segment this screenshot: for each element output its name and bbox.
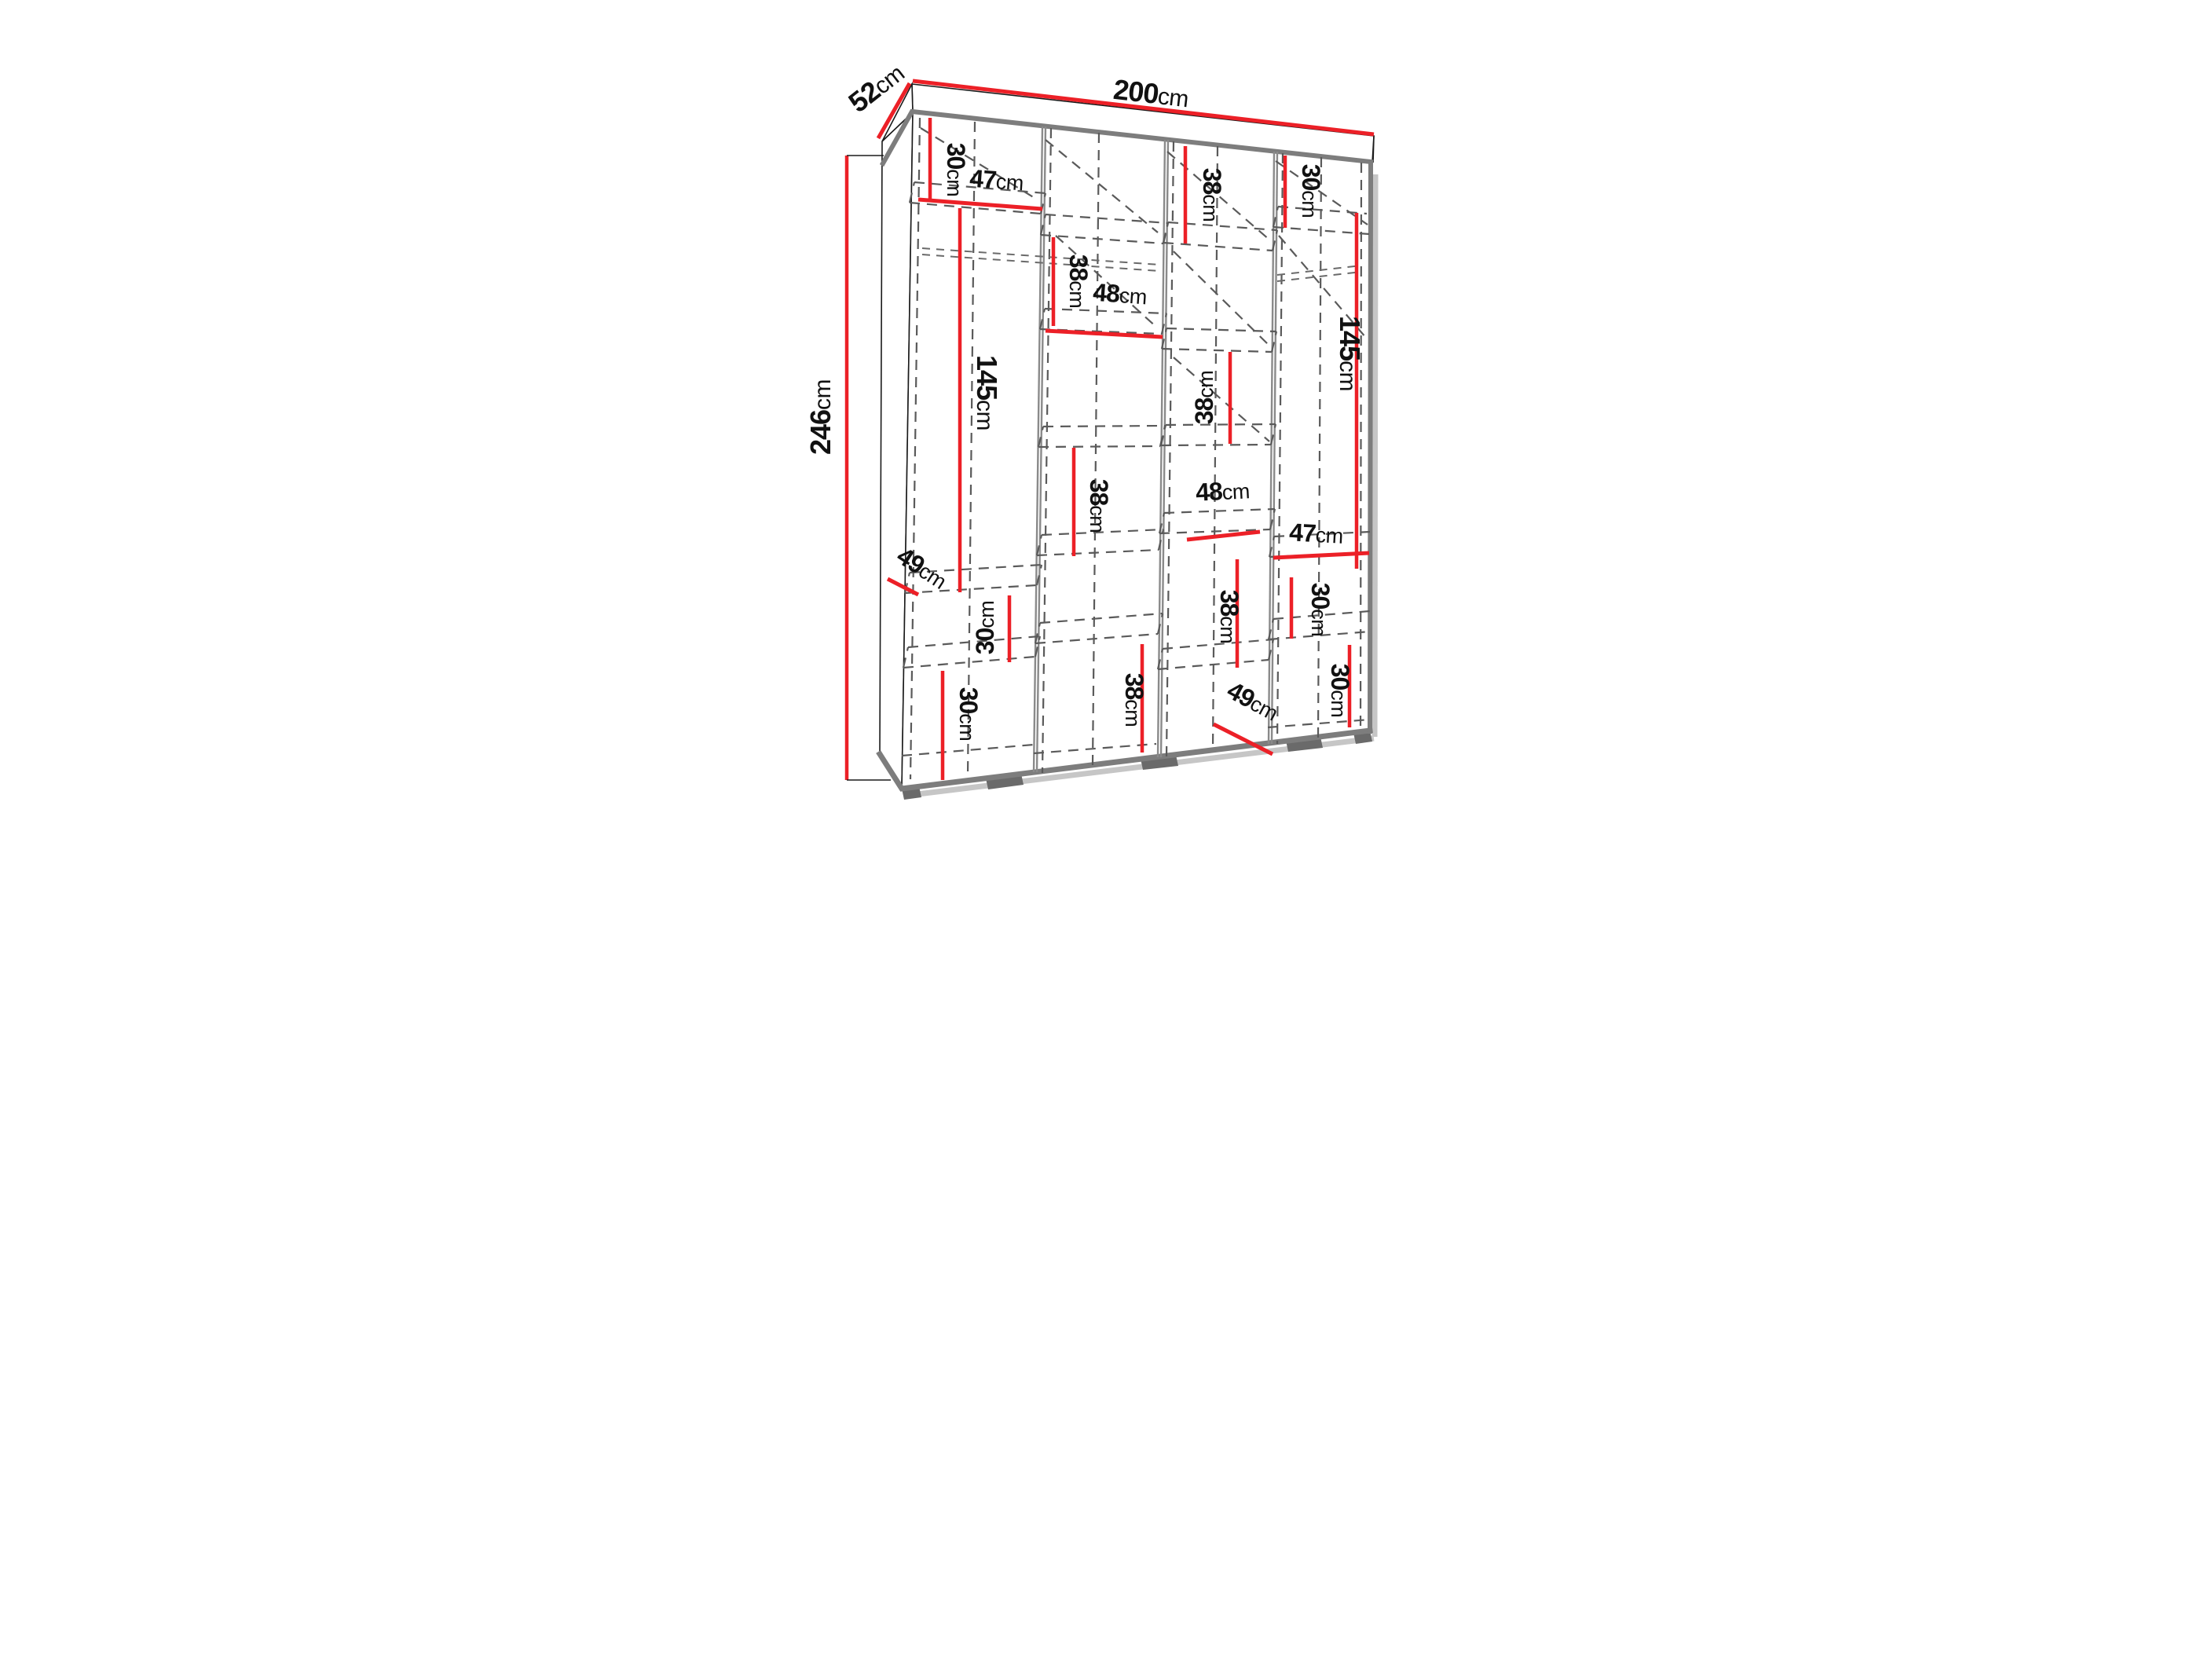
dimension-label-col4-bot-30: 30cm: [1326, 664, 1354, 718]
dimension-label-col3-48: 48cm: [1195, 475, 1250, 507]
dimension-label-col1-mid-30: 30cm: [971, 601, 999, 655]
dimension-label-col4-145: 145cm: [1334, 316, 1366, 391]
diagram-canvas: 52cm 200cm 246cm 30cm 47cm 145cm 49cm 30…: [553, 0, 1659, 829]
dimension-label-col3-low-38: 38cm: [1215, 590, 1243, 644]
dimension-label-col1-bot-30: 30cm: [954, 687, 983, 742]
dimension-label-height: 246cm: [804, 379, 837, 455]
top-right-edge-tick: [1373, 136, 1374, 163]
wardrobe-dimension-diagram: 52cm 200cm 246cm 30cm 47cm 145cm 49cm 30…: [553, 0, 1659, 829]
dimension-label-col4-top-30: 30cm: [1297, 164, 1325, 218]
dimension-label-col3-mid-38: 38cm: [1190, 371, 1218, 425]
dimension-label-col3-top-38: 38cm: [1198, 168, 1226, 222]
dimension-label-col2-mid-38: 38cm: [1085, 479, 1113, 533]
dimension-label-col2-top-38: 38cm: [1064, 255, 1093, 309]
dimension-label-col4-mid-30: 30cm: [1306, 583, 1335, 637]
dimension-label-col1-top-30: 30cm: [942, 143, 970, 197]
dimension-label-col1-145: 145cm: [971, 355, 1003, 430]
dimension-label-col2-bot-38: 38cm: [1120, 673, 1148, 727]
